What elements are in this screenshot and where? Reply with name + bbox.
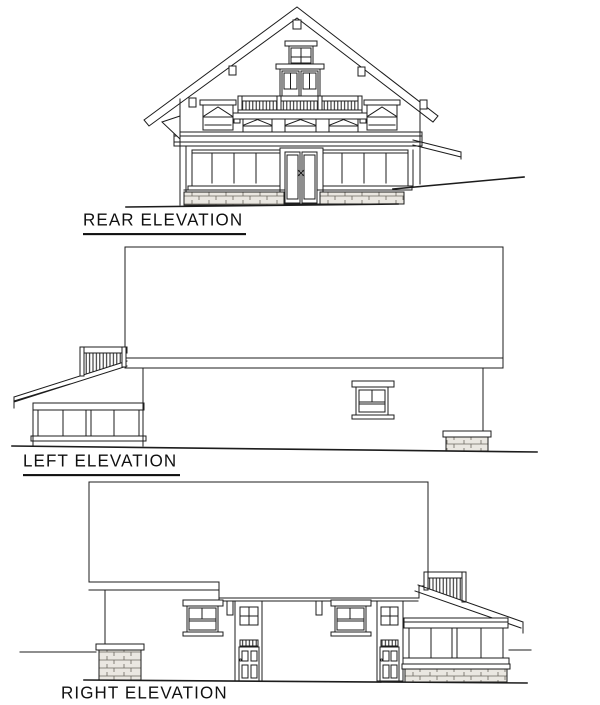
- attic-window: [285, 41, 317, 65]
- upper-right-window: [364, 100, 400, 130]
- right-roof-plane: [89, 482, 428, 601]
- rear-double-doors: [280, 148, 323, 204]
- lower-right-window-wall: [318, 150, 412, 190]
- belt-band: [174, 132, 422, 146]
- ridge-beam-end: [293, 20, 301, 29]
- upper-left-window: [200, 100, 236, 130]
- elevations-drawing: [0, 0, 600, 705]
- purlin-end: [189, 98, 196, 107]
- left-elevation-label: LEFT ELEVATION: [23, 452, 180, 476]
- right-door-1: [235, 601, 262, 681]
- left-wall-corners: [143, 368, 483, 441]
- right-stone-pier: [20, 644, 144, 680]
- left-sunroom-shed-roof: [14, 361, 127, 408]
- balcony-deck-band: [232, 113, 368, 119]
- lower-left-window-wall: [188, 150, 284, 190]
- right-sunroom: [402, 618, 510, 682]
- right-side-railing: [424, 572, 466, 602]
- purlin-end: [358, 67, 365, 76]
- right-window-a: [183, 600, 223, 636]
- left-wall-window: [352, 381, 394, 419]
- left-sunroom: [31, 403, 146, 446]
- right-window-b: [331, 600, 371, 636]
- balcony-french-doors: [276, 64, 324, 97]
- purlin-end: [229, 66, 236, 75]
- eave-fascia: [125, 358, 503, 368]
- left-elevation-drawing: [12, 247, 537, 452]
- rear-elevation-drawing: [126, 7, 524, 207]
- beam-end: [227, 601, 233, 615]
- left-side-railing: [80, 347, 127, 376]
- left-roof-plane: [125, 247, 503, 368]
- right-elevation-drawing: [20, 482, 531, 683]
- purlin-end: [420, 100, 427, 109]
- beam-end: [316, 601, 322, 615]
- elevation-sheet: REAR ELEVATION LEFT ELEVATION RIGHT ELEV…: [0, 0, 600, 705]
- right-door-2: [377, 601, 403, 681]
- right-elevation-label: RIGHT ELEVATION: [61, 684, 231, 705]
- rear-elevation-label: REAR ELEVATION: [83, 211, 246, 235]
- eave-knee-brace: [162, 116, 180, 139]
- stone-cap: [402, 664, 510, 669]
- left-stone-pier: [443, 431, 491, 451]
- under-balcony-windows: [243, 119, 358, 132]
